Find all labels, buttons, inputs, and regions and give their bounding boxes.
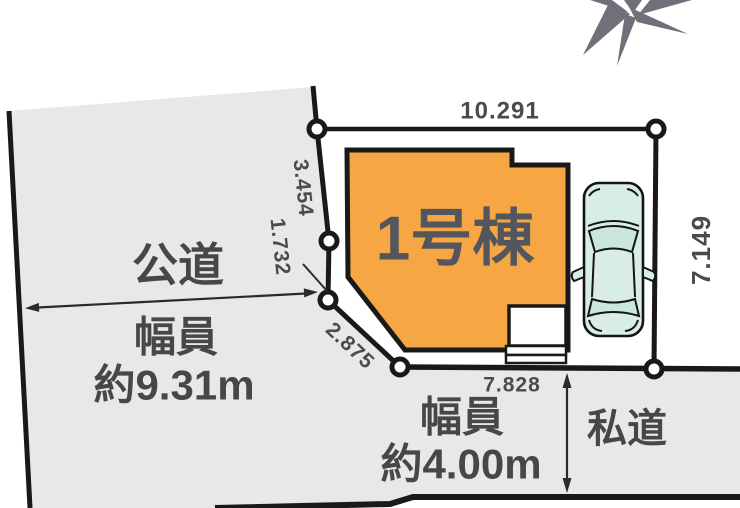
boundary-marker — [648, 121, 664, 137]
boundary-marker — [320, 292, 336, 308]
entrance-step-2 — [506, 355, 566, 363]
north-compass-icon — [583, 0, 692, 66]
public-road-label: 公道 — [132, 239, 224, 291]
entrance-porch — [509, 306, 566, 346]
site-plan: 10.291 3.454 1.732 2.875 7.828 7.149 1号棟… — [0, 0, 740, 508]
private-road-label: 私道 — [587, 407, 667, 451]
boundary-marker — [392, 359, 408, 375]
plot-boundary-bottom — [400, 367, 740, 369]
building-label: 1号棟 — [376, 205, 535, 274]
dimension-top: 10.291 — [460, 98, 539, 125]
boundary-marker — [321, 233, 337, 249]
plot-boundary-right — [654, 129, 656, 369]
dimension-right: 7.149 — [686, 215, 716, 285]
boundary-marker — [646, 361, 662, 377]
public-road-width-label-line1: 幅員 — [134, 314, 218, 361]
site-plan-svg: 10.291 3.454 1.732 2.875 7.828 7.149 1号棟… — [0, 0, 740, 508]
private-road-width-label-line1: 幅員 — [420, 394, 504, 441]
car-icon — [572, 183, 656, 336]
entrance-step-1 — [506, 346, 566, 355]
boundary-marker — [309, 121, 325, 137]
public-road-width-label-line2: 約9.31m — [93, 362, 254, 409]
private-road-width-label-line2: 約4.00m — [380, 441, 541, 488]
